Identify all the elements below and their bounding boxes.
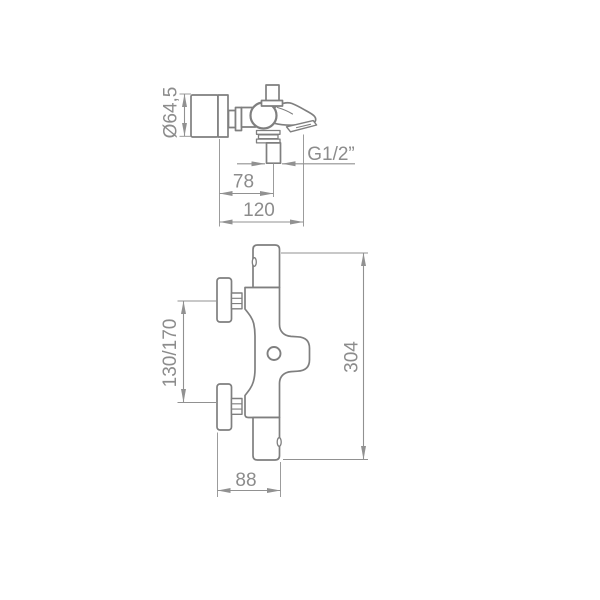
wall-connector-bottom-ribs — [232, 399, 243, 415]
dim-offset-78: 78 — [220, 172, 274, 194]
drawing-canvas: Ø64,5 78 120 G1/2” — [0, 0, 600, 600]
handle-skirt — [218, 95, 228, 137]
handle-top — [253, 245, 280, 288]
hose-connector-ribs — [257, 131, 281, 143]
connector-nut — [236, 108, 242, 131]
dim-centers-label: 130/170 — [160, 319, 181, 388]
handle-bottom — [253, 418, 280, 461]
dim-depth-label: 88 — [235, 470, 256, 491]
dim-diameter-label: Ø64,5 — [161, 87, 182, 139]
wall-connector-top-ribs — [232, 293, 243, 309]
dim-offset-label: 78 — [233, 172, 254, 193]
dim-diameter: Ø64,5 — [161, 87, 192, 139]
side-view: Ø64,5 78 120 G1/2” — [161, 85, 356, 227]
technical-drawing: Ø64,5 78 120 G1/2” — [0, 0, 600, 600]
wall-flange-top — [217, 278, 232, 322]
dim-projection-120: 120 — [220, 200, 304, 222]
body-screw-circle — [268, 347, 281, 360]
dim-thread-g12: G1/2” — [237, 144, 355, 165]
dim-centers-130-170: 130/170 — [160, 301, 217, 403]
handle-top-notch — [252, 258, 256, 267]
diverter-stem — [266, 85, 279, 101]
connector-stack-small — [229, 111, 236, 128]
handle-bottom-notch — [277, 438, 281, 447]
dim-projection-label: 120 — [243, 200, 275, 221]
front-view: 130/170 304 88 — [160, 245, 368, 497]
dim-height-label: 304 — [342, 341, 363, 373]
wall-flange-bottom — [217, 384, 232, 430]
shower-outlet-tube — [267, 143, 281, 163]
handle-side-view — [191, 95, 218, 137]
diverter-collar — [262, 101, 283, 107]
dim-thread-label: G1/2” — [307, 144, 355, 165]
